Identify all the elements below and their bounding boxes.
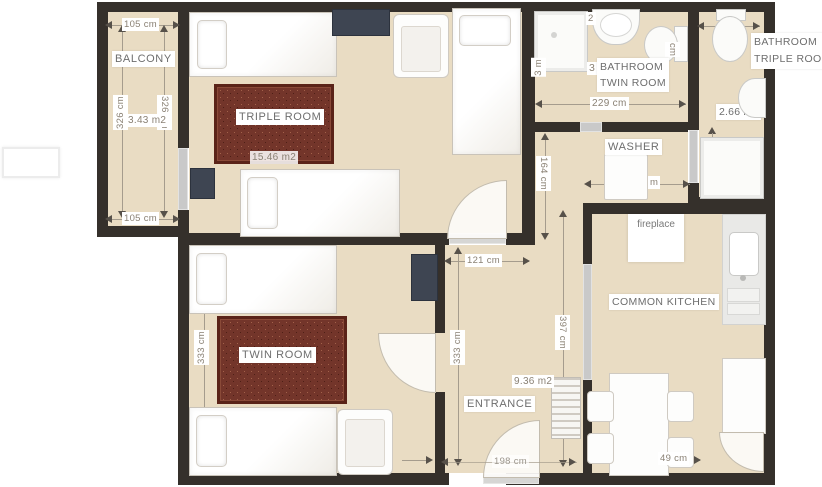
bathroom-twin-label-line2: TWIN ROOM (600, 77, 666, 89)
balcony-window (178, 148, 188, 210)
dim-line (402, 460, 428, 461)
dim-arrow (173, 21, 180, 29)
entrance-area: 9.36 m2 (512, 375, 554, 388)
dim-arrow (683, 180, 690, 188)
wardrobe (411, 254, 438, 301)
entrance-label: ENTRANCE (464, 396, 535, 412)
fridge (722, 358, 766, 434)
dim-arrow (569, 458, 576, 466)
corridor-height: 164 cm (536, 156, 551, 191)
bathroom-twin-right-fragment: cm (665, 42, 680, 57)
triple-room-area: 15.46 m2 (250, 151, 298, 164)
bathroom-triple-label-line1: BATHROOM (754, 36, 817, 48)
balcony-width-top: 105 cm (122, 18, 159, 31)
wall (178, 237, 189, 485)
dresser (332, 9, 390, 36)
wall (97, 226, 189, 237)
dim-arrow (523, 257, 530, 265)
dim-arrow (173, 215, 180, 223)
bathroom-twin-top-fragment: 2 (586, 12, 596, 25)
balcony-area: 3.43 m2 (126, 114, 168, 127)
twin-doorway-floor (435, 333, 445, 392)
chair (667, 391, 694, 422)
dim-arrow (444, 257, 451, 265)
wall (97, 2, 108, 237)
kitchen-table-dim: 49 cm (658, 452, 689, 465)
dim-arrow (426, 456, 433, 464)
entrance-width-dim: 198 cm (492, 455, 529, 468)
shower (700, 137, 764, 199)
counter-drawer (727, 303, 760, 315)
kitchen-sink (729, 232, 759, 276)
bathroom-twin-width: 229 cm (590, 97, 629, 110)
bathroom-twin-left-fragment: 3 m (531, 58, 546, 77)
twin-room-height: 333 cm (194, 330, 209, 365)
dim-arrow (697, 22, 704, 30)
dim-arrow (679, 100, 686, 108)
bathroom-triple-label: BATHROOM TRIPLE ROOM (751, 33, 822, 69)
dim-arrow (160, 25, 168, 32)
bathroom-twin-area-fragment: 3 (587, 62, 597, 75)
bathroom-twin-door (580, 122, 602, 132)
washer-label: WASHER (605, 139, 662, 155)
balcony-width-bottom: 105 cm (122, 212, 159, 225)
blank-label (2, 147, 60, 178)
faucet (740, 275, 746, 281)
armchair-seat (401, 26, 441, 72)
entrance-width-top: 121 cm (465, 254, 502, 267)
washer-width-fragment: m (648, 176, 660, 189)
pillow (196, 415, 227, 467)
triple-room-label: TRIPLE ROOM (236, 109, 324, 125)
dim-arrow (753, 22, 760, 30)
dim-arrow (541, 133, 549, 140)
dim-arrow (584, 180, 591, 188)
dim-arrow (105, 215, 112, 223)
toilet-bowl (712, 16, 748, 62)
fireplace-label: fireplace (630, 219, 682, 230)
chair (587, 391, 614, 422)
wall (583, 203, 592, 265)
dim-arrow (559, 210, 567, 217)
dim-arrow (105, 21, 112, 29)
dim-arrow (694, 456, 701, 464)
wall (602, 122, 688, 132)
common-kitchen-label: COMMON KITCHEN (609, 294, 719, 310)
bathroom-triple-door (689, 130, 698, 183)
twin-room-label: TWIN ROOM (239, 347, 316, 363)
wall (97, 2, 775, 12)
chair (587, 433, 614, 464)
dim-arrow (454, 247, 462, 254)
armchair-seat (345, 419, 385, 467)
pillow (247, 177, 278, 229)
bathroom-triple-label-line2: TRIPLE ROOM (754, 53, 822, 65)
dim-arrow (441, 458, 448, 466)
entrance-height-right: 397 cm (555, 315, 570, 350)
bathroom-twin-label: BATHROOM TWIN ROOM (597, 58, 669, 92)
counter-drawer (727, 288, 760, 302)
sink (738, 78, 766, 118)
radiator (551, 377, 581, 439)
bathroom-twin-label-line1: BATHROOM (600, 61, 663, 73)
dim-arrow (541, 233, 549, 240)
kitchen-sliding-door (583, 264, 592, 380)
floor-plan: 198 cm 2.66 m2 fireplace BALCONY 105 c (0, 0, 822, 487)
nightstand (190, 168, 215, 199)
washing-machine (604, 154, 648, 200)
wall (535, 122, 580, 132)
sink-bowl (600, 13, 632, 37)
dim-arrow (160, 211, 168, 218)
entrance-height-left: 333 cm (450, 330, 465, 365)
pillow (197, 20, 227, 69)
pillow (196, 253, 227, 305)
pillow (459, 15, 511, 46)
wall (583, 203, 775, 214)
shower-drain (551, 32, 557, 38)
dim-arrow (535, 100, 542, 108)
balcony-label: BALCONY (112, 51, 175, 67)
